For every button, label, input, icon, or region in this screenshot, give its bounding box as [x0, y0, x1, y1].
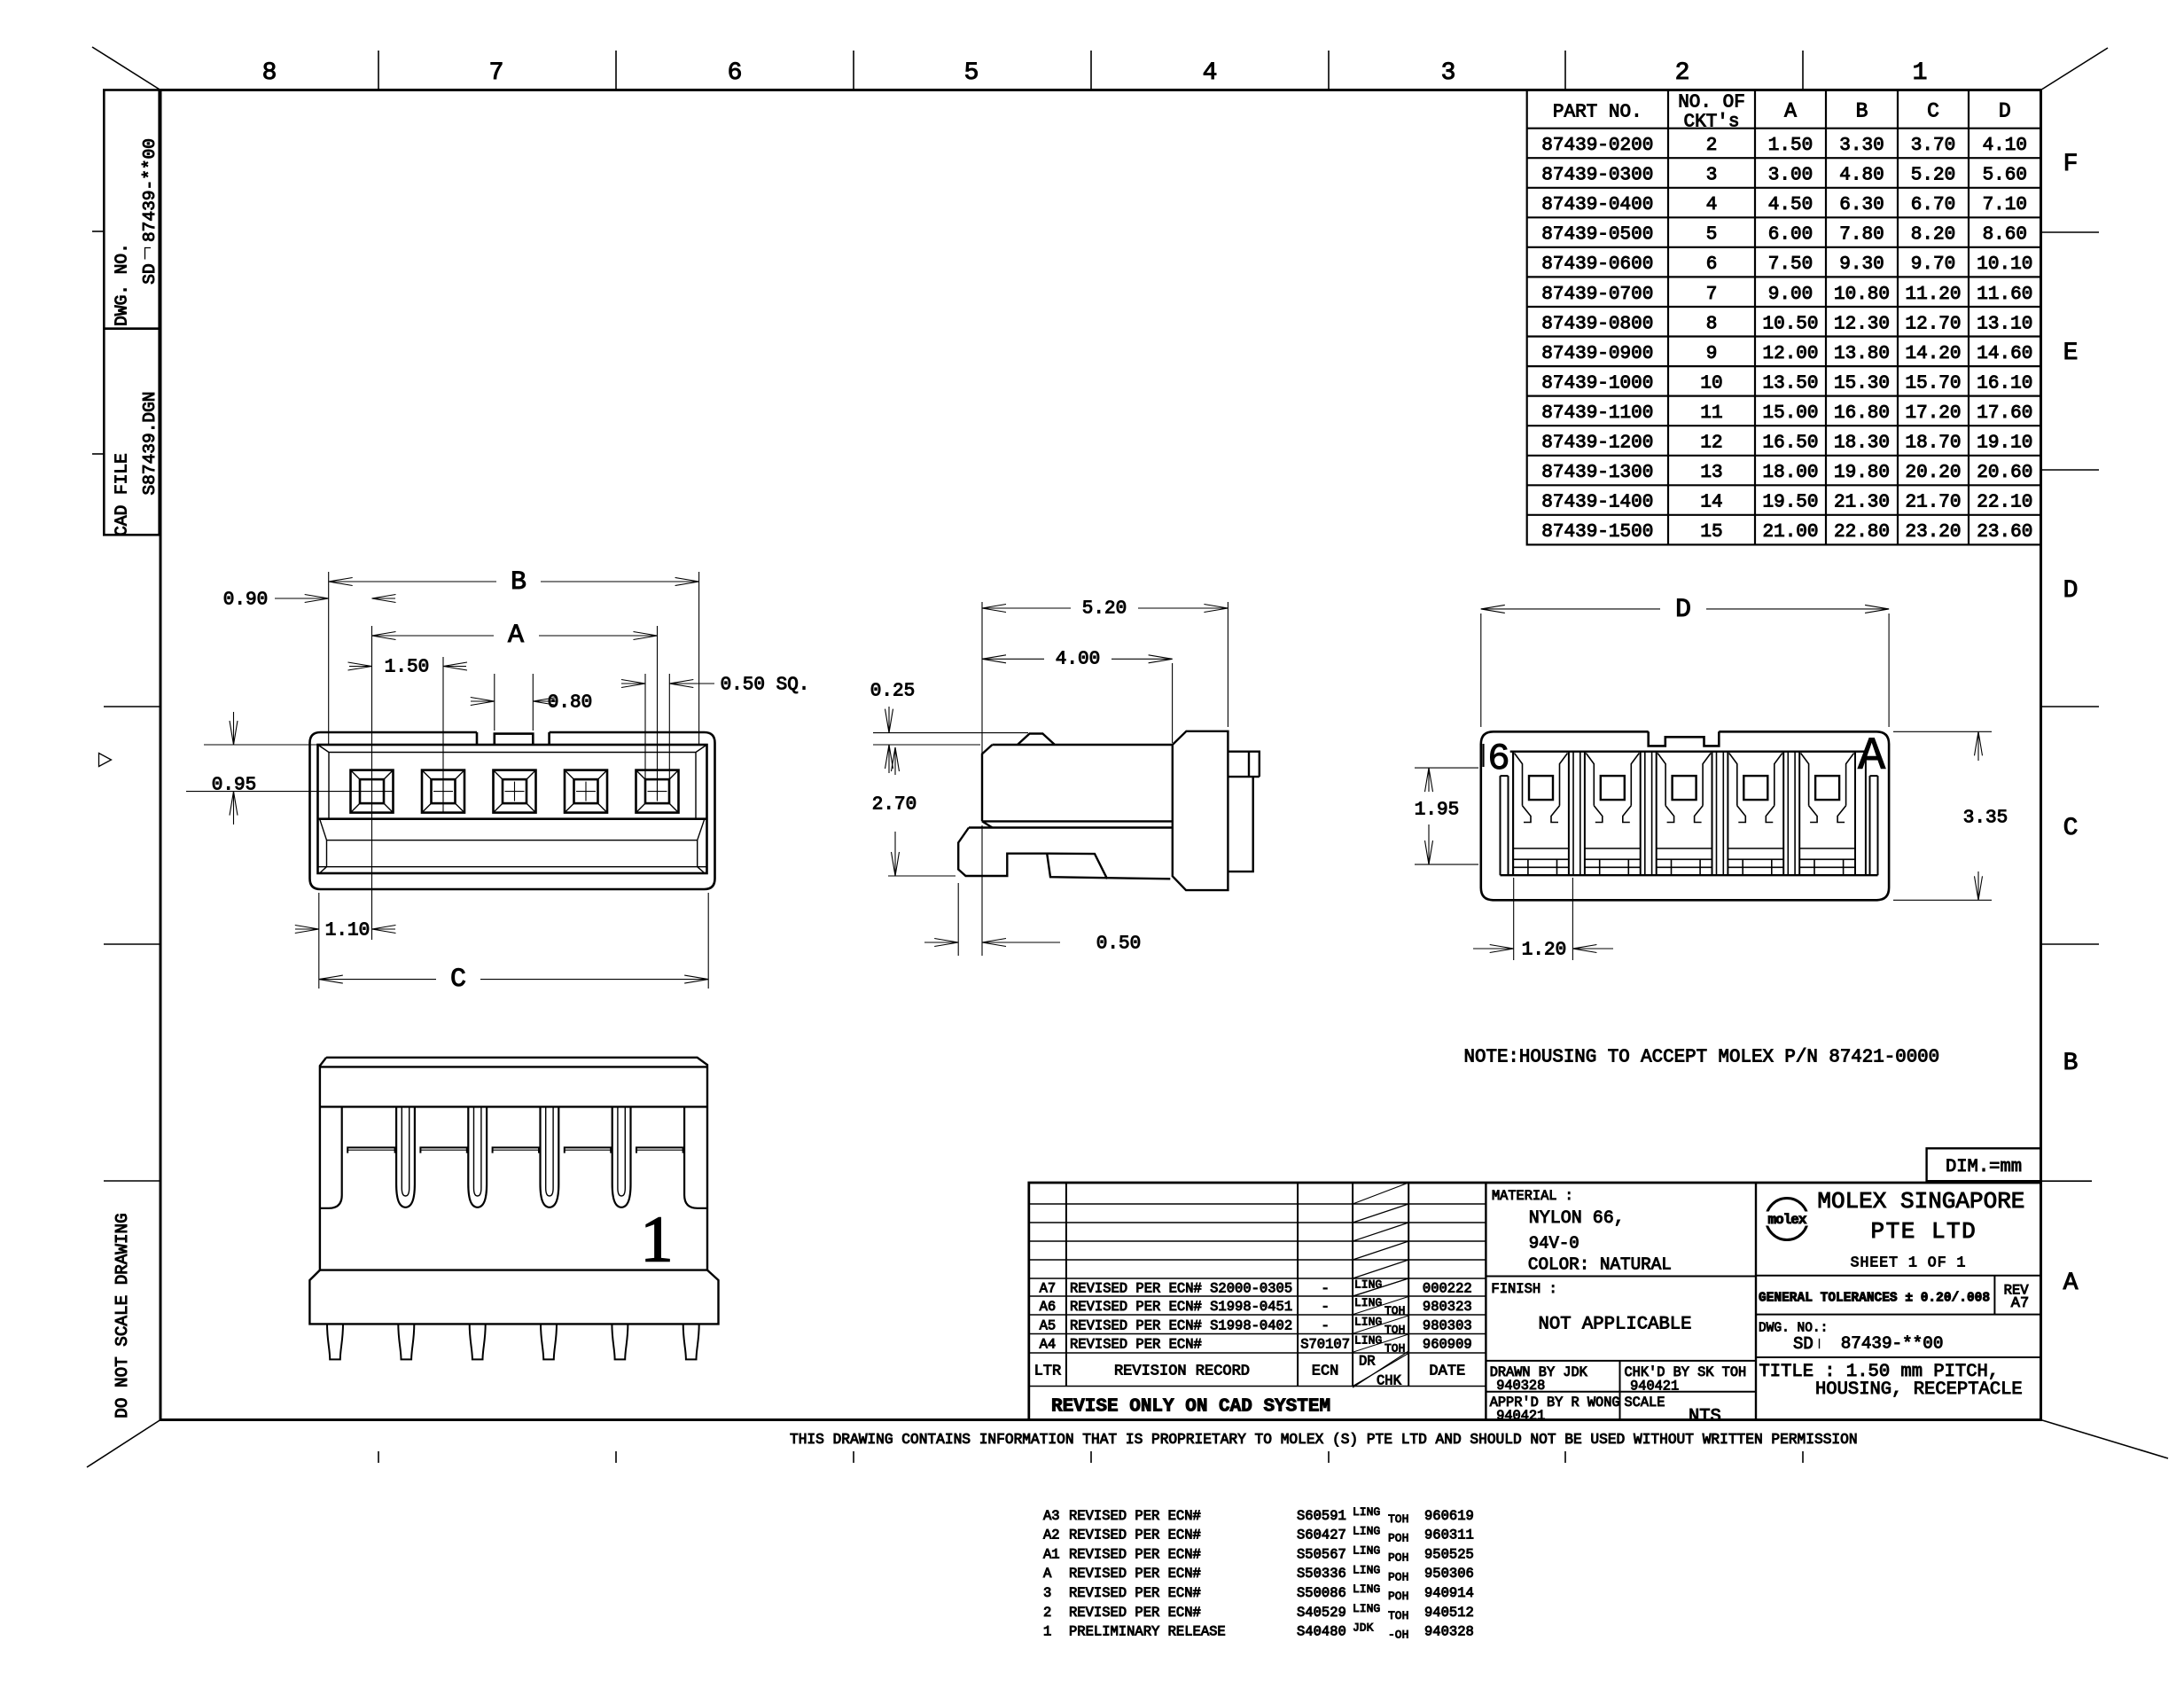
svg-text:19.10: 19.10 [1977, 434, 2032, 454]
svg-text:NOT APPLICABLE: NOT APPLICABLE [1539, 1314, 1692, 1334]
svg-text:18.30: 18.30 [1834, 434, 1890, 454]
svg-text:D: D [1675, 595, 1691, 625]
svg-text:87439-1100: 87439-1100 [1541, 403, 1653, 424]
svg-text:9.00: 9.00 [1768, 285, 1813, 305]
svg-text:7: 7 [489, 59, 504, 87]
svg-text:980323: 980323 [1423, 1299, 1472, 1315]
svg-text:F: F [2063, 151, 2079, 178]
svg-text:5.20: 5.20 [1082, 599, 1127, 620]
svg-text:DR: DR [1359, 1354, 1376, 1370]
svg-text:4.80: 4.80 [1839, 166, 1884, 186]
svg-text:-: - [1321, 1299, 1329, 1315]
svg-text:10.10: 10.10 [1977, 254, 2032, 275]
svg-text:REVISED PER ECN# S1998-0451: REVISED PER ECN# S1998-0451 [1070, 1299, 1292, 1315]
svg-text:21.00: 21.00 [1762, 522, 1818, 543]
svg-text:12: 12 [1700, 434, 1722, 454]
svg-text:SD: SD [140, 263, 160, 284]
svg-text:14: 14 [1700, 493, 1722, 513]
svg-text:D: D [1999, 99, 2011, 122]
svg-text:8.20: 8.20 [1911, 225, 1955, 246]
svg-text:1.95: 1.95 [1415, 801, 1459, 821]
svg-text:5.20: 5.20 [1911, 166, 1955, 186]
svg-text:A6: A6 [1040, 1299, 1057, 1315]
svg-text:5.60: 5.60 [1983, 166, 2027, 186]
svg-text:15.00: 15.00 [1762, 403, 1818, 424]
svg-text:3: 3 [1441, 59, 1456, 87]
svg-text:0.90: 0.90 [223, 590, 268, 611]
svg-text:0.50: 0.50 [1096, 934, 1141, 955]
svg-text:19.50: 19.50 [1762, 493, 1818, 513]
svg-text:B: B [1856, 99, 1868, 122]
svg-text:8: 8 [262, 59, 277, 87]
svg-text:5: 5 [964, 59, 979, 87]
svg-text:2.70: 2.70 [872, 795, 916, 816]
svg-text:15: 15 [1700, 522, 1722, 543]
svg-text:13.80: 13.80 [1834, 344, 1890, 364]
svg-text:B: B [2063, 1050, 2079, 1077]
svg-text:TOH: TOH [1384, 1324, 1405, 1337]
svg-text:14.20: 14.20 [1905, 344, 1961, 364]
svg-text:LING: LING [1354, 1278, 1382, 1292]
svg-text:LTR: LTR [1034, 1364, 1062, 1380]
svg-text:MOLEX SINGAPORE: MOLEX SINGAPORE [1817, 1188, 2024, 1215]
svg-text:-: - [1321, 1281, 1329, 1297]
svg-text:23.20: 23.20 [1905, 522, 1961, 543]
svg-text:LING: LING [1354, 1316, 1382, 1329]
svg-text:LING: LING [1353, 1525, 1380, 1538]
svg-text:HOUSING, RECEPTACLE: HOUSING, RECEPTACLE [1815, 1379, 2023, 1400]
svg-text:ECN: ECN [1312, 1364, 1339, 1380]
svg-text:16.50: 16.50 [1762, 434, 1818, 454]
svg-text:LING: LING [1353, 1563, 1380, 1576]
svg-text:22.10: 22.10 [1977, 493, 2032, 513]
svg-text:E: E [2063, 340, 2079, 367]
svg-text:A: A [508, 621, 524, 651]
svg-text:2: 2 [1706, 136, 1718, 156]
svg-text:16.80: 16.80 [1834, 403, 1890, 424]
svg-text:C: C [2063, 815, 2079, 842]
svg-text:20.60: 20.60 [1977, 463, 2032, 483]
svg-text:3: 3 [1706, 166, 1718, 186]
svg-text:22.80: 22.80 [1834, 522, 1890, 543]
svg-text:14.60: 14.60 [1977, 344, 2032, 364]
svg-text:87439-0300: 87439-0300 [1541, 166, 1653, 186]
svg-text:PTE LTD: PTE LTD [1871, 1218, 1977, 1245]
svg-text:A4: A4 [1040, 1337, 1057, 1353]
svg-text:13: 13 [1700, 463, 1722, 483]
svg-text:A5: A5 [1040, 1318, 1057, 1334]
svg-text:15.70: 15.70 [1905, 373, 1961, 394]
svg-text:4.00: 4.00 [1056, 650, 1100, 670]
svg-text:1: 1 [641, 1204, 674, 1277]
svg-text:11.20: 11.20 [1905, 285, 1961, 305]
svg-text:LING: LING [1353, 1505, 1380, 1519]
svg-text:87439-1500: 87439-1500 [1541, 522, 1653, 543]
svg-text:DATE: DATE [1429, 1364, 1465, 1380]
svg-text:20.20: 20.20 [1905, 463, 1961, 483]
svg-text:9.70: 9.70 [1911, 254, 1955, 275]
svg-text:87439-**00: 87439-**00 [1841, 1334, 1944, 1354]
svg-text:C: C [1927, 99, 1939, 122]
svg-text:16.10: 16.10 [1977, 373, 2032, 394]
svg-text:940421: 940421 [1630, 1379, 1679, 1395]
svg-text:0.25: 0.25 [870, 682, 915, 702]
svg-text:PRELIMINARY RELEASE: PRELIMINARY RELEASE [1069, 1624, 1226, 1640]
svg-text:87439-0700: 87439-0700 [1541, 285, 1653, 305]
svg-text:7: 7 [1706, 285, 1718, 305]
svg-text:87439-0200: 87439-0200 [1541, 136, 1653, 156]
svg-text:950306: 950306 [1424, 1566, 1474, 1582]
svg-text:18.70: 18.70 [1905, 434, 1961, 454]
svg-text:3.35: 3.35 [1963, 809, 2008, 829]
svg-text:S60427: S60427 [1297, 1528, 1346, 1543]
svg-text:87439-0800: 87439-0800 [1541, 314, 1653, 334]
svg-text:A2: A2 [1043, 1528, 1060, 1543]
svg-text:3.00: 3.00 [1768, 166, 1813, 186]
svg-text:SD: SD [1793, 1334, 1813, 1354]
svg-text:0.50 SQ.: 0.50 SQ. [721, 676, 810, 696]
svg-text:TOH: TOH [1384, 1342, 1405, 1356]
svg-text:A7: A7 [2011, 1295, 2029, 1312]
svg-text:COLOR: NATURAL: COLOR: NATURAL [1528, 1254, 1672, 1274]
svg-text:GENERAL TOLERANCES ± 0.20/.008: GENERAL TOLERANCES ± 0.20/.008 [1759, 1291, 1990, 1305]
svg-text:4: 4 [1706, 195, 1718, 215]
svg-text:PART NO.: PART NO. [1553, 103, 1642, 123]
svg-text:TOH: TOH [1388, 1609, 1408, 1622]
svg-text:3.30: 3.30 [1839, 136, 1884, 156]
svg-text:LING: LING [1354, 1334, 1382, 1348]
svg-text:10.80: 10.80 [1834, 285, 1890, 305]
svg-text:S40529: S40529 [1297, 1605, 1346, 1621]
svg-text:12.70: 12.70 [1905, 314, 1961, 334]
svg-text:6.70: 6.70 [1911, 195, 1955, 215]
svg-text:4.10: 4.10 [1983, 136, 2027, 156]
svg-text:A: A [1858, 731, 1886, 783]
svg-text:6.30: 6.30 [1839, 195, 1884, 215]
svg-text:12.00: 12.00 [1762, 344, 1818, 364]
svg-text:6: 6 [1706, 254, 1718, 275]
svg-text:13.50: 13.50 [1762, 373, 1818, 394]
svg-text:REVISED PER ECN#: REVISED PER ECN# [1069, 1605, 1201, 1621]
svg-text:940328: 940328 [1496, 1378, 1545, 1394]
svg-text:8.60: 8.60 [1983, 225, 2027, 246]
svg-text:REVISED PER ECN#: REVISED PER ECN# [1069, 1508, 1201, 1524]
svg-text:940328: 940328 [1424, 1624, 1474, 1640]
svg-text:1.50: 1.50 [385, 658, 429, 678]
svg-text:S70107: S70107 [1300, 1337, 1350, 1353]
svg-text:10: 10 [1700, 373, 1722, 394]
svg-text:1.20: 1.20 [1522, 941, 1566, 961]
svg-text:0.80: 0.80 [548, 693, 592, 714]
svg-text:A7: A7 [1040, 1281, 1057, 1297]
svg-text:POH: POH [1388, 1532, 1408, 1545]
svg-text:-OH: -OH [1388, 1629, 1408, 1642]
svg-text:21.70: 21.70 [1905, 493, 1961, 513]
svg-text:960909: 960909 [1423, 1337, 1472, 1353]
svg-text:JDK: JDK [1353, 1622, 1374, 1635]
svg-text:A: A [1784, 99, 1797, 122]
svg-text:87439-0500: 87439-0500 [1541, 225, 1653, 246]
svg-text:3.70: 3.70 [1911, 136, 1955, 156]
svg-text:REVISED PER ECN# S2000-0305: REVISED PER ECN# S2000-0305 [1070, 1281, 1292, 1297]
svg-text:B: B [511, 567, 526, 598]
svg-text:8: 8 [1706, 314, 1718, 334]
svg-text:7.10: 7.10 [1983, 195, 2027, 215]
svg-text:molex: molex [1767, 1212, 1806, 1228]
svg-text:940914: 940914 [1424, 1585, 1474, 1601]
svg-text:1: 1 [1043, 1624, 1051, 1640]
svg-text:D: D [2063, 577, 2079, 605]
svg-text:23.60: 23.60 [1977, 522, 2032, 543]
svg-text:11.60: 11.60 [1977, 285, 2032, 305]
svg-text:LING: LING [1353, 1582, 1380, 1596]
svg-text:87439-**00: 87439-**00 [140, 138, 160, 242]
svg-text:87439-1200: 87439-1200 [1541, 434, 1653, 454]
svg-text:CHK: CHK [1377, 1373, 1402, 1389]
svg-text:1: 1 [1913, 59, 1928, 87]
svg-text:87439-1000: 87439-1000 [1541, 373, 1653, 394]
svg-text:87439-0400: 87439-0400 [1541, 195, 1653, 215]
svg-text:REVISED PER ECN#: REVISED PER ECN# [1069, 1528, 1201, 1543]
svg-text:940421: 940421 [1496, 1408, 1545, 1424]
svg-text:2: 2 [1043, 1605, 1051, 1621]
svg-text:960619: 960619 [1424, 1508, 1474, 1524]
svg-text:10.50: 10.50 [1762, 314, 1818, 334]
svg-text:REVISED PER ECN#: REVISED PER ECN# [1070, 1337, 1202, 1353]
svg-text:1.50: 1.50 [1768, 136, 1813, 156]
svg-text:A: A [2063, 1270, 2079, 1297]
svg-text:87439-1400: 87439-1400 [1541, 493, 1653, 513]
svg-text:18.00: 18.00 [1762, 463, 1818, 483]
svg-text:S40480: S40480 [1297, 1624, 1346, 1640]
svg-text:11: 11 [1700, 403, 1722, 424]
svg-text:0.95: 0.95 [212, 776, 256, 796]
svg-text:REVISED PER ECN#: REVISED PER ECN# [1069, 1566, 1201, 1582]
svg-text:SCALE: SCALE [1625, 1395, 1665, 1411]
svg-text:LING: LING [1354, 1296, 1382, 1309]
svg-text:87439-1300: 87439-1300 [1541, 463, 1653, 483]
svg-text:DIM.=mm: DIM.=mm [1946, 1157, 2022, 1177]
svg-text:POH: POH [1388, 1590, 1408, 1603]
svg-text:21.30: 21.30 [1834, 493, 1890, 513]
svg-text:4: 4 [1203, 59, 1218, 87]
svg-text:3: 3 [1043, 1585, 1051, 1601]
svg-text:THIS DRAWING CONTAINS INFORMAT: THIS DRAWING CONTAINS INFORMATION THAT I… [790, 1432, 1858, 1448]
svg-text:FINISH :: FINISH : [1491, 1281, 1556, 1297]
svg-text:S50336: S50336 [1297, 1566, 1346, 1582]
svg-text:940512: 940512 [1424, 1605, 1474, 1621]
svg-text:A: A [1043, 1566, 1052, 1582]
svg-text:5: 5 [1706, 225, 1718, 246]
svg-text:6: 6 [728, 59, 743, 87]
svg-text:000222: 000222 [1423, 1281, 1472, 1297]
svg-text:A1: A1 [1043, 1546, 1060, 1562]
svg-text:9: 9 [1706, 344, 1718, 364]
svg-text:NOTE:HOUSING TO ACCEPT MOLEX P: NOTE:HOUSING TO ACCEPT MOLEX P/N 87421-0… [1464, 1048, 1940, 1068]
svg-text:87439-0600: 87439-0600 [1541, 254, 1653, 275]
svg-text:NO. OF: NO. OF [1678, 93, 1745, 113]
svg-text:2: 2 [1675, 59, 1690, 87]
svg-text:CKT's: CKT's [1683, 113, 1739, 133]
svg-text:17.20: 17.20 [1905, 403, 1961, 424]
svg-text:SHEET 1 OF 1: SHEET 1 OF 1 [1851, 1254, 1967, 1271]
svg-text:9.30: 9.30 [1839, 254, 1884, 275]
svg-text:1.10: 1.10 [325, 921, 370, 942]
svg-text:4.50: 4.50 [1768, 195, 1813, 215]
svg-text:12.30: 12.30 [1834, 314, 1890, 334]
svg-text:15.30: 15.30 [1834, 373, 1890, 394]
svg-text:7.80: 7.80 [1839, 225, 1884, 246]
svg-text:C: C [450, 965, 466, 995]
svg-text:950525: 950525 [1424, 1546, 1474, 1562]
svg-text:REVISION RECORD: REVISION RECORD [1114, 1364, 1250, 1380]
svg-text:REVISED PER ECN#: REVISED PER ECN# [1069, 1546, 1201, 1562]
svg-text:94V-0: 94V-0 [1529, 1234, 1579, 1254]
svg-text:S50086: S50086 [1297, 1585, 1346, 1601]
svg-text:S87439.DGN: S87439.DGN [140, 391, 160, 495]
svg-text:MATERIAL :: MATERIAL : [1492, 1188, 1573, 1204]
svg-text:6.00: 6.00 [1768, 225, 1813, 246]
svg-text:87439-0900: 87439-0900 [1541, 344, 1653, 364]
svg-text:POH: POH [1388, 1551, 1408, 1565]
svg-text:S50567: S50567 [1297, 1546, 1346, 1562]
svg-text:980303: 980303 [1423, 1318, 1472, 1334]
svg-text:LING: LING [1353, 1602, 1380, 1615]
svg-text:19.80: 19.80 [1834, 463, 1890, 483]
svg-text:960311: 960311 [1424, 1528, 1474, 1543]
svg-text:-: - [1321, 1318, 1329, 1334]
svg-text:A3: A3 [1043, 1508, 1060, 1524]
svg-text:NYLON 66,: NYLON 66, [1529, 1208, 1625, 1229]
svg-text:POH: POH [1388, 1570, 1408, 1583]
svg-text:LING: LING [1353, 1544, 1380, 1558]
svg-text:17.60: 17.60 [1977, 403, 2032, 424]
svg-text:CAD FILE: CAD FILE [113, 453, 132, 536]
svg-text:REVISED PER ECN#: REVISED PER ECN# [1069, 1585, 1201, 1601]
svg-text:13.10: 13.10 [1977, 314, 2032, 334]
svg-text:DO NOT SCALE DRAWING: DO NOT SCALE DRAWING [113, 1213, 132, 1418]
svg-text:NTS: NTS [1689, 1406, 1721, 1426]
svg-text:7.50: 7.50 [1768, 254, 1813, 275]
svg-text:TOH: TOH [1388, 1512, 1408, 1526]
svg-text:S60591: S60591 [1297, 1508, 1346, 1524]
svg-text:DWG. NO.: DWG. NO. [113, 243, 132, 326]
svg-text:6: 6 [1487, 738, 1509, 780]
svg-text:TOH: TOH [1384, 1304, 1405, 1317]
svg-text:REVISED PER ECN# S1998-0402: REVISED PER ECN# S1998-0402 [1070, 1318, 1292, 1334]
svg-text:REVISE ONLY ON CAD SYSTEM: REVISE ONLY ON CAD SYSTEM [1051, 1397, 1330, 1418]
